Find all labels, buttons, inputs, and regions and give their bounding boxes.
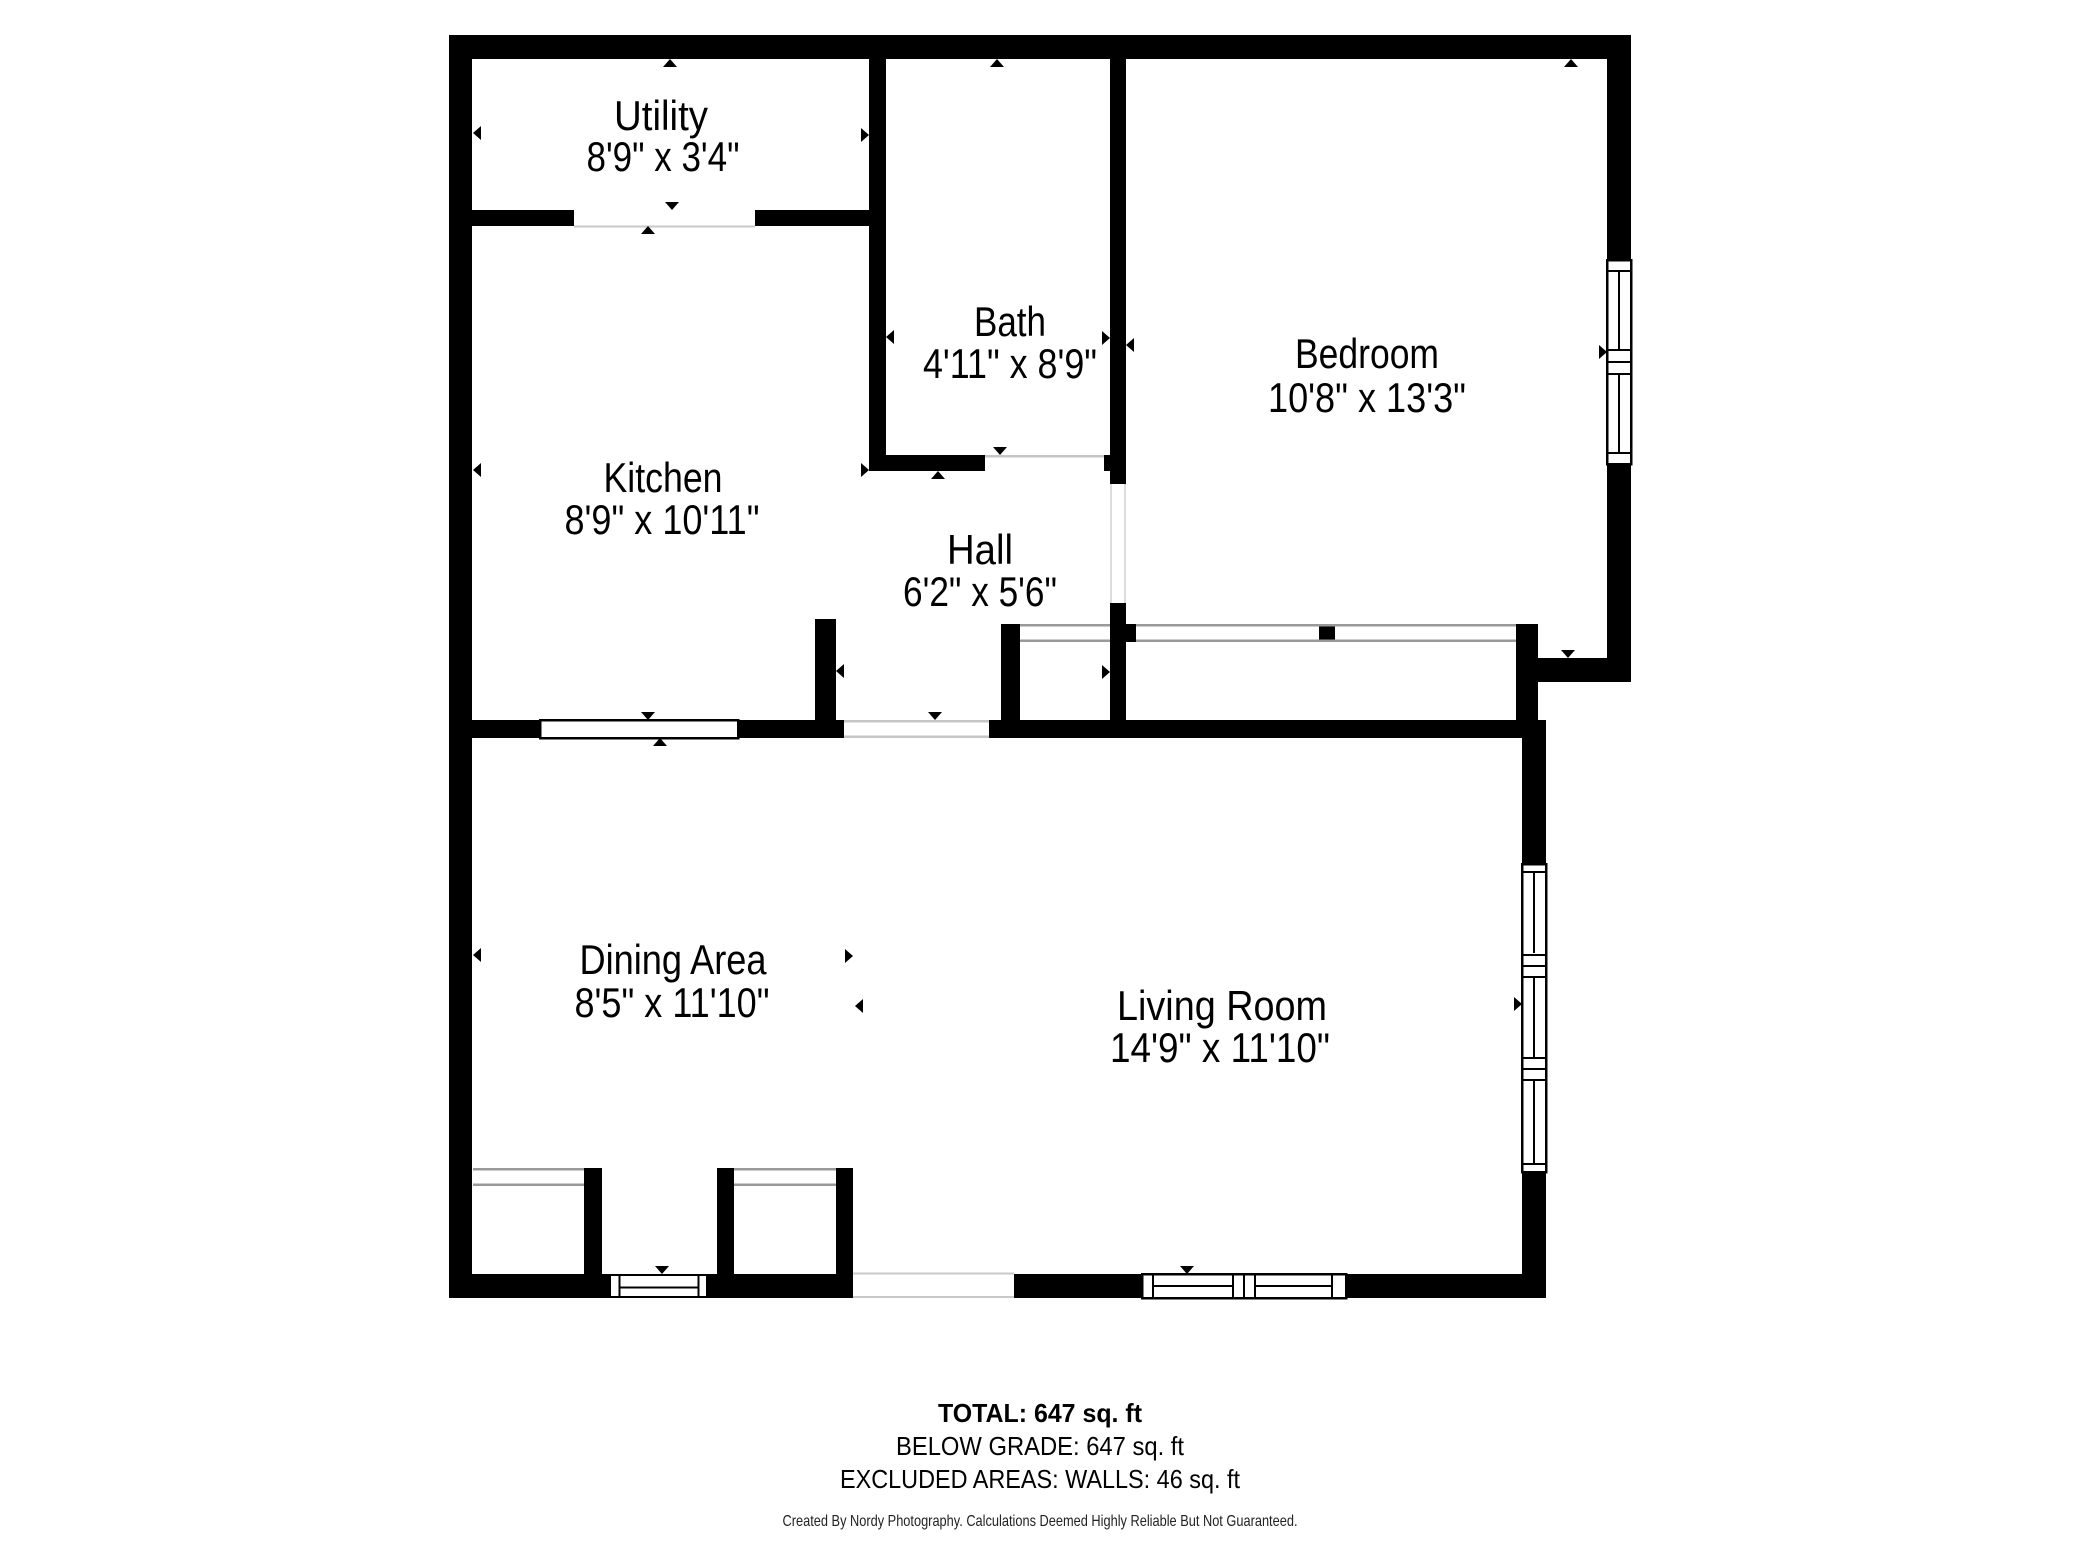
svg-text:6'2" x 5'6": 6'2" x 5'6" [903,568,1057,615]
svg-text:8'9" x 3'4": 8'9" x 3'4" [587,133,740,180]
svg-text:Bedroom: Bedroom [1295,330,1439,377]
svg-text:BELOW GRADE: 647 sq. ft: BELOW GRADE: 647 sq. ft [896,1431,1185,1461]
svg-text:Created By Nordy Photography.: Created By Nordy Photography. Calculatio… [783,1513,1298,1530]
svg-text:8'9" x 10'11": 8'9" x 10'11" [565,496,760,543]
svg-text:Living Room: Living Room [1117,982,1327,1029]
svg-text:4'11" x 8'9": 4'11" x 8'9" [923,340,1097,387]
svg-text:Dining Area: Dining Area [580,936,768,983]
svg-text:Hall: Hall [947,526,1013,573]
svg-text:TOTAL: 647 sq. ft: TOTAL: 647 sq. ft [938,1398,1142,1428]
svg-text:14'9" x 11'10": 14'9" x 11'10" [1110,1024,1330,1071]
svg-text:Bath: Bath [974,298,1046,345]
svg-text:Kitchen: Kitchen [604,454,723,501]
svg-text:8'5" x 11'10": 8'5" x 11'10" [575,979,770,1026]
svg-text:EXCLUDED AREAS: WALLS: 46 sq.: EXCLUDED AREAS: WALLS: 46 sq. ft [840,1464,1241,1494]
svg-text:Utility: Utility [614,92,708,139]
svg-text:10'8" x 13'3": 10'8" x 13'3" [1268,374,1466,421]
